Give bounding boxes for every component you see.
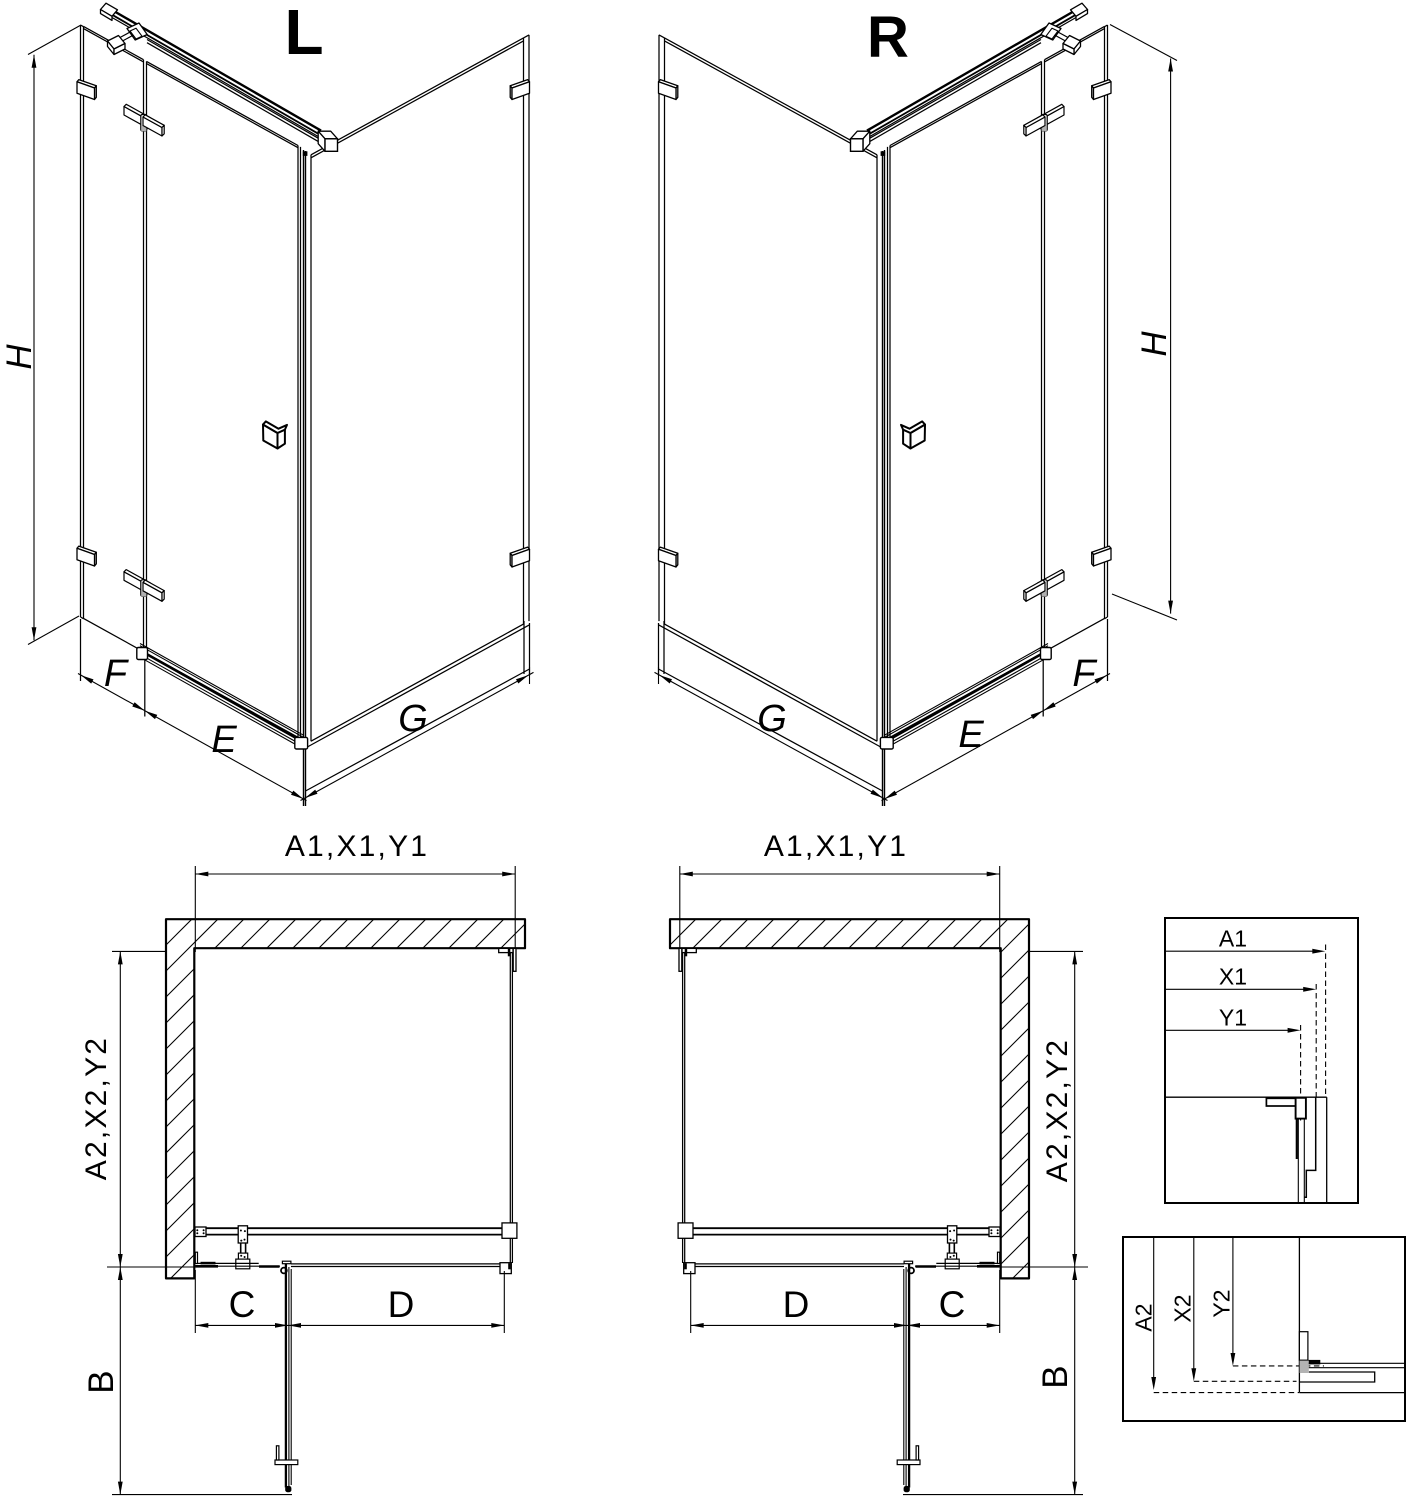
svg-text:A2,X2,Y2: A2,X2,Y2 — [80, 1036, 113, 1180]
svg-text:H: H — [1135, 331, 1174, 357]
svg-text:H: H — [0, 344, 39, 370]
svg-text:A1,X1,Y1: A1,X1,Y1 — [764, 830, 908, 863]
svg-text:B: B — [82, 1370, 121, 1393]
svg-text:G: G — [757, 698, 787, 740]
svg-text:Y1: Y1 — [1219, 1005, 1247, 1031]
svg-text:A1,X1,Y1: A1,X1,Y1 — [285, 830, 429, 863]
svg-text:A2: A2 — [1131, 1303, 1157, 1331]
svg-text:C: C — [939, 1284, 966, 1325]
svg-text:Y2: Y2 — [1209, 1289, 1235, 1317]
svg-text:E: E — [211, 719, 237, 761]
svg-text:X2: X2 — [1170, 1294, 1196, 1322]
svg-text:B: B — [1036, 1365, 1075, 1388]
svg-text:F: F — [1072, 653, 1097, 695]
svg-text:A1: A1 — [1219, 926, 1247, 952]
svg-text:D: D — [388, 1284, 415, 1325]
svg-text:R: R — [867, 5, 909, 70]
svg-text:G: G — [398, 698, 428, 740]
svg-text:C: C — [229, 1284, 256, 1325]
svg-text:L: L — [284, 0, 323, 68]
svg-text:X1: X1 — [1219, 964, 1247, 990]
svg-text:A2,X2,Y2: A2,X2,Y2 — [1041, 1038, 1074, 1182]
svg-text:F: F — [104, 653, 129, 695]
svg-text:D: D — [783, 1284, 810, 1325]
svg-text:E: E — [958, 714, 984, 756]
